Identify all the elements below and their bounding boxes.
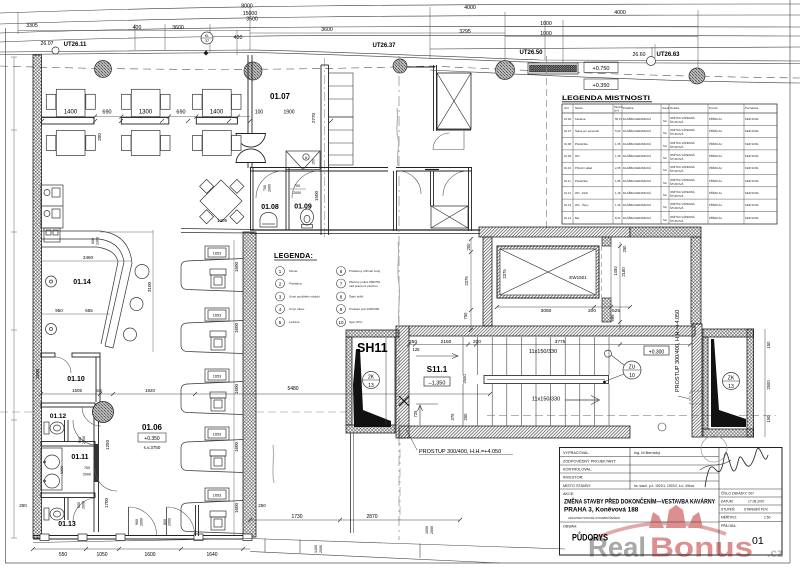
svg-text:DLAŽBA KERAMICKÁ: DLAŽBA KERAMICKÁ bbox=[623, 178, 651, 183]
svg-text:125: 125 bbox=[413, 347, 421, 352]
svg-text:Kavárna: Kavárna bbox=[575, 117, 586, 121]
svg-text:SA: SA bbox=[663, 144, 667, 148]
svg-text:690: 690 bbox=[176, 110, 185, 116]
svg-text:hs. slouč. p.č. 1922/1, 1922/2: hs. slouč. p.č. 1922/1, 1922/2, k.ú. Vít… bbox=[634, 484, 695, 488]
svg-text:1653: 1653 bbox=[213, 375, 221, 379]
svg-text:250: 250 bbox=[622, 245, 627, 253]
svg-text:200: 200 bbox=[97, 133, 102, 141]
svg-text:2150: 2150 bbox=[441, 339, 452, 345]
svg-text:1600: 1600 bbox=[144, 552, 155, 558]
svg-text:375: 375 bbox=[450, 413, 455, 421]
svg-text:55,07: 55,07 bbox=[615, 117, 622, 121]
svg-text:1000: 1000 bbox=[540, 21, 552, 27]
svg-text:1300: 1300 bbox=[60, 466, 64, 474]
svg-text:01.07: 01.07 bbox=[270, 92, 291, 101]
svg-text:01.09: 01.09 bbox=[294, 204, 312, 211]
svg-text:1050: 1050 bbox=[96, 552, 107, 558]
svg-text:26.60: 26.60 bbox=[633, 52, 646, 58]
svg-text:1730: 1730 bbox=[291, 514, 302, 520]
svg-text:2000: 2000 bbox=[82, 501, 86, 509]
svg-text:1,35: 1,35 bbox=[615, 154, 621, 158]
svg-text:3100: 3100 bbox=[147, 281, 152, 292]
svg-text:DLAŽBA KERAMICKÁ: DLAŽBA KERAMICKÁ bbox=[623, 141, 651, 146]
svg-text:EW1501: EW1501 bbox=[569, 275, 587, 280]
svg-text:WC - Ženy: WC - Ženy bbox=[575, 202, 589, 207]
svg-text:01.14: 01.14 bbox=[564, 216, 571, 220]
svg-text:DLAŽBA KERAMICKÁ: DLAŽBA KERAMICKÁ bbox=[623, 128, 651, 133]
svg-text:Bonus: Bonus bbox=[650, 532, 753, 563]
svg-text:01.08: 01.08 bbox=[564, 142, 571, 146]
svg-text:01.11: 01.11 bbox=[71, 454, 88, 461]
svg-text:ZU: ZU bbox=[629, 365, 636, 371]
svg-text:DLAŽBA KERAMICKÁ: DLAŽBA KERAMICKÁ bbox=[623, 153, 651, 158]
svg-text:KL: KL bbox=[205, 34, 209, 38]
svg-text:Prodejní pult 1600/300: Prodejní pult 1600/300 bbox=[349, 307, 380, 311]
svg-text:250: 250 bbox=[463, 413, 468, 421]
svg-text:ZMĚNA STAVBY PŘED DOKONČENÍM—V: ZMĚNA STAVBY PŘED DOKONČENÍM—VESTAVBA KA… bbox=[564, 497, 716, 506]
svg-text:PŘÍMLUH: PŘÍMLUH bbox=[709, 116, 722, 121]
svg-text:Umyt rukou: Umyt rukou bbox=[289, 307, 305, 311]
svg-text:nad pracovní plochou: nad pracovní plochou bbox=[349, 284, 378, 288]
svg-text:800: 800 bbox=[163, 519, 167, 525]
svg-text:KER.SOKL: KER.SOKL bbox=[745, 142, 759, 146]
svg-text:PROSTUP 300/400, H.H.=+4.050: PROSTUP 300/400, H.H.=+4.050 bbox=[419, 449, 501, 455]
svg-text:2000: 2000 bbox=[293, 191, 301, 195]
svg-text:1500: 1500 bbox=[35, 368, 40, 379]
svg-text:PŘÍMLUH: PŘÍMLUH bbox=[709, 202, 722, 207]
svg-text:Lednice: Lednice bbox=[289, 320, 300, 324]
svg-text:150: 150 bbox=[312, 159, 316, 165]
svg-text:100: 100 bbox=[255, 110, 264, 116]
svg-text:700: 700 bbox=[263, 185, 267, 191]
svg-text:250: 250 bbox=[409, 339, 417, 345]
svg-text:2770: 2770 bbox=[311, 112, 316, 123]
svg-text:PŘÍMLUH: PŘÍMLUH bbox=[709, 128, 722, 133]
svg-text:PRAHA 3, Koněvová 188: PRAHA 3, Koněvová 188 bbox=[564, 507, 639, 514]
svg-text:+0.350: +0.350 bbox=[144, 436, 160, 442]
svg-text:1653: 1653 bbox=[213, 433, 221, 437]
svg-text:ŠTUKOVÁ: ŠTUKOVÁ bbox=[670, 193, 684, 198]
svg-text:ŠTUKOVÁ: ŠTUKOVÁ bbox=[670, 144, 684, 149]
svg-text:STUPEŇ:: STUPEŇ: bbox=[721, 508, 735, 512]
svg-text:Omítka: Omítka bbox=[670, 106, 679, 110]
svg-text:01: 01 bbox=[752, 535, 764, 547]
svg-text:Název: Název bbox=[575, 106, 584, 110]
svg-text:2500: 2500 bbox=[766, 380, 771, 390]
svg-text:MĚŘÍTKO:: MĚŘÍTKO: bbox=[721, 515, 737, 520]
svg-text:DLAŽBA KERAMICKÁ: DLAŽBA KERAMICKÁ bbox=[623, 165, 651, 170]
svg-text:01.07: 01.07 bbox=[564, 129, 571, 133]
svg-text:3600: 3600 bbox=[321, 27, 333, 33]
svg-text:2000: 2000 bbox=[268, 184, 272, 192]
svg-text:DLAŽBA KERAMICKÁ: DLAŽBA KERAMICKÁ bbox=[623, 202, 651, 207]
svg-text:725: 725 bbox=[413, 410, 418, 418]
svg-text:1920: 1920 bbox=[145, 388, 156, 393]
svg-text:1300: 1300 bbox=[139, 110, 153, 116]
svg-text:8: 8 bbox=[305, 156, 307, 160]
svg-text:1500: 1500 bbox=[314, 190, 319, 201]
svg-text:[m²]: [m²] bbox=[614, 109, 619, 113]
svg-text:900: 900 bbox=[135, 519, 139, 525]
svg-text:1,86: 1,86 bbox=[615, 179, 621, 183]
svg-text:3600: 3600 bbox=[172, 25, 184, 31]
svg-text:3500: 3500 bbox=[246, 17, 258, 23]
svg-text:1700: 1700 bbox=[104, 497, 109, 508]
svg-text:Předsíňka: Předsíňka bbox=[575, 179, 588, 183]
svg-text:KER.SOKL: KER.SOKL bbox=[745, 166, 759, 170]
svg-text:Předsíňka: Předsíňka bbox=[575, 142, 588, 146]
svg-text:PŘÍMLUH: PŘÍMLUH bbox=[709, 178, 722, 183]
svg-text:1400: 1400 bbox=[314, 545, 318, 553]
svg-text:PŘÍLOHA:: PŘÍLOHA: bbox=[721, 523, 736, 528]
svg-text:AKCE:: AKCE: bbox=[563, 492, 574, 496]
svg-text:1640: 1640 bbox=[206, 552, 217, 558]
svg-text:2000: 2000 bbox=[430, 526, 434, 534]
svg-text:Spor (PC): Spor (PC) bbox=[349, 320, 362, 324]
svg-text:LEGENDA:: LEGENDA: bbox=[274, 251, 313, 260]
svg-text:2000: 2000 bbox=[82, 436, 86, 444]
svg-text:Šatní skříň: Šatní skříň bbox=[349, 294, 364, 299]
svg-text:KER.SOKL: KER.SOKL bbox=[745, 154, 759, 158]
svg-text:Ozn: Ozn bbox=[564, 106, 570, 110]
svg-text:10: 10 bbox=[338, 320, 344, 325]
svg-text:3050: 3050 bbox=[541, 308, 552, 314]
svg-text:695: 695 bbox=[610, 314, 615, 322]
svg-text:SA: SA bbox=[663, 131, 667, 135]
svg-text:ŠTUKOVÁ: ŠTUKOVÁ bbox=[670, 131, 684, 136]
svg-text:ŠTUKOVÁ: ŠTUKOVÁ bbox=[670, 218, 684, 223]
svg-text:1600: 1600 bbox=[234, 441, 239, 452]
svg-text:37: 37 bbox=[205, 39, 209, 43]
svg-text:UT26.50: UT26.50 bbox=[519, 50, 543, 56]
svg-text:1300: 1300 bbox=[96, 237, 100, 245]
svg-text:1653: 1653 bbox=[213, 494, 221, 498]
svg-text:KER.SOKL: KER.SOKL bbox=[745, 117, 759, 121]
svg-text:1000: 1000 bbox=[425, 526, 429, 534]
svg-text:ARCHITEKTONICKÉ STAVEBNÍ ŘEŠEN: ARCHITEKTONICKÉ STAVEBNÍ ŘEŠENÍ bbox=[568, 515, 620, 520]
svg-text:3295: 3295 bbox=[459, 29, 471, 35]
svg-text:2K: 2K bbox=[368, 375, 375, 381]
svg-text:Ing. M.Bernický: Ing. M.Bernický bbox=[634, 451, 660, 455]
svg-text:1,35: 1,35 bbox=[615, 142, 621, 146]
svg-text:2500: 2500 bbox=[462, 374, 467, 384]
svg-text:Šatna pro personál: Šatna pro personál bbox=[575, 128, 599, 133]
svg-text:1000: 1000 bbox=[540, 31, 552, 37]
svg-text:UT26.63: UT26.63 bbox=[656, 52, 680, 58]
svg-text:DLAŽBA KERAMICKÁ: DLAŽBA KERAMICKÁ bbox=[623, 116, 651, 121]
svg-text:1,16: 1,16 bbox=[615, 203, 621, 207]
svg-text:SA: SA bbox=[663, 181, 667, 185]
svg-text:KONTROLOVAL:: KONTROLOVAL: bbox=[563, 468, 592, 472]
svg-text:1653: 1653 bbox=[213, 314, 221, 318]
svg-text:01.13: 01.13 bbox=[564, 203, 571, 207]
svg-text:01.06: 01.06 bbox=[142, 423, 163, 432]
svg-text:.cz: .cz bbox=[767, 546, 783, 560]
svg-text:1600: 1600 bbox=[234, 322, 239, 333]
svg-text:Podlaha: Podlaha bbox=[623, 106, 634, 110]
svg-text:01.08: 01.08 bbox=[261, 204, 279, 211]
svg-text:26.07: 26.07 bbox=[41, 41, 54, 47]
svg-text:SA: SA bbox=[663, 168, 667, 172]
svg-text:–1,350: –1,350 bbox=[429, 381, 446, 387]
svg-text:Prùtokový ohřívač vody: Prùtokový ohřívač vody bbox=[349, 269, 381, 273]
svg-text:+0.300: +0.300 bbox=[649, 350, 665, 356]
svg-text:525: 525 bbox=[612, 308, 620, 314]
svg-text:KER.SOKL: KER.SOKL bbox=[745, 203, 759, 207]
svg-text:UT26.11: UT26.11 bbox=[64, 42, 87, 48]
svg-text:600: 600 bbox=[77, 502, 81, 508]
svg-text:200: 200 bbox=[473, 339, 481, 345]
svg-text:01.13: 01.13 bbox=[58, 521, 76, 528]
svg-text:250: 250 bbox=[258, 503, 266, 508]
svg-text:Klozet: Klozet bbox=[289, 269, 298, 273]
svg-text:5,62: 5,62 bbox=[615, 129, 621, 133]
svg-text:LEGENDA MISTNOSTI: LEGENDA MISTNOSTI bbox=[562, 95, 650, 102]
svg-text:690: 690 bbox=[102, 110, 111, 116]
svg-text:11x150/330: 11x150/330 bbox=[532, 397, 560, 403]
svg-text:ŠTUKOVÁ: ŠTUKOVÁ bbox=[670, 181, 684, 186]
svg-text:Soudr: Soudr bbox=[662, 106, 670, 110]
svg-text:01.06: 01.06 bbox=[564, 117, 571, 121]
svg-text:Pokladna: Pokladna bbox=[289, 282, 302, 286]
svg-text:150: 150 bbox=[766, 341, 771, 349]
svg-text:2375: 2375 bbox=[502, 269, 507, 279]
svg-text:WC - Muži: WC - Muži bbox=[575, 191, 588, 195]
svg-text:1400: 1400 bbox=[64, 110, 78, 116]
svg-text:OBSAH:: OBSAH: bbox=[563, 525, 577, 529]
svg-text:INVESTOR:: INVESTOR: bbox=[563, 476, 583, 480]
svg-text:01.10: 01.10 bbox=[67, 376, 85, 383]
svg-text:655: 655 bbox=[85, 308, 93, 313]
svg-text:01.12: 01.12 bbox=[50, 413, 67, 420]
svg-text:WC: WC bbox=[575, 154, 580, 158]
svg-text:11x150/330: 11x150/330 bbox=[529, 349, 557, 355]
svg-text:2000: 2000 bbox=[140, 518, 144, 526]
svg-text:SA: SA bbox=[663, 156, 667, 160]
svg-text:ŠTUKOVÁ: ŠTUKOVÁ bbox=[670, 168, 684, 173]
svg-text:700: 700 bbox=[294, 184, 300, 188]
svg-text:1900: 1900 bbox=[283, 110, 294, 116]
svg-text:Umyt použitého nádobí: Umyt použitého nádobí bbox=[289, 295, 320, 299]
svg-text:1250: 1250 bbox=[105, 439, 110, 450]
svg-text:5480: 5480 bbox=[287, 386, 298, 392]
svg-text:SA: SA bbox=[663, 205, 667, 209]
svg-text:01.09: 01.09 bbox=[564, 154, 571, 158]
svg-text:SA: SA bbox=[663, 119, 667, 123]
svg-text:+0.750: +0.750 bbox=[593, 66, 610, 72]
svg-text:DLAŽBA KERAMICKÁ: DLAŽBA KERAMICKÁ bbox=[623, 215, 651, 220]
svg-text:1653: 1653 bbox=[213, 252, 221, 256]
svg-text:1505: 1505 bbox=[72, 388, 83, 393]
svg-text:4000: 4000 bbox=[464, 5, 476, 11]
svg-text:150: 150 bbox=[766, 415, 771, 423]
svg-text:2000: 2000 bbox=[319, 545, 323, 553]
svg-text:Poznámka: Poznámka bbox=[745, 106, 759, 110]
svg-text:SA: SA bbox=[663, 218, 667, 222]
svg-text:UT26.37: UT26.37 bbox=[372, 43, 396, 49]
svg-text:STAVEBNÍ POV.: STAVEBNÍ POV. bbox=[744, 508, 768, 512]
svg-text:DLAŽBA KERAMICKÁ: DLAŽBA KERAMICKÁ bbox=[623, 190, 651, 195]
svg-text:3775: 3775 bbox=[555, 339, 566, 345]
svg-text:10: 10 bbox=[629, 373, 635, 379]
svg-text:1,16: 1,16 bbox=[615, 191, 621, 195]
svg-text:400: 400 bbox=[133, 25, 142, 31]
svg-text:2,25: 2,25 bbox=[615, 166, 621, 170]
svg-text:2870: 2870 bbox=[366, 514, 377, 520]
svg-text:550: 550 bbox=[59, 552, 68, 558]
svg-text:DATUM:: DATUM: bbox=[721, 500, 733, 504]
svg-text:SA: SA bbox=[663, 193, 667, 197]
svg-text:700: 700 bbox=[84, 466, 90, 470]
svg-text:ZK: ZK bbox=[728, 376, 735, 382]
svg-text:s.v.3750: s.v.3750 bbox=[144, 445, 161, 450]
svg-text:PŮDORYS: PŮDORYS bbox=[572, 532, 608, 543]
svg-text:KER.SOKL: KER.SOKL bbox=[745, 216, 759, 220]
svg-text:PŘÍMLUH: PŘÍMLUH bbox=[709, 215, 722, 220]
svg-text:4000: 4000 bbox=[614, 10, 626, 16]
svg-text:1600: 1600 bbox=[234, 502, 239, 513]
svg-text:PŘÍMLUH: PŘÍMLUH bbox=[709, 141, 722, 146]
svg-text:1600: 1600 bbox=[234, 383, 239, 394]
svg-text:ZODPOVĚDNÝ PROJEKTANT:: ZODPOVĚDNÝ PROJEKTANT: bbox=[563, 458, 616, 463]
svg-text:750: 750 bbox=[463, 312, 468, 320]
svg-text:01.10: 01.10 bbox=[564, 166, 571, 170]
svg-text:01.11: 01.11 bbox=[564, 179, 571, 183]
svg-text:S11.1: S11.1 bbox=[427, 365, 448, 374]
svg-text:3305: 3305 bbox=[26, 23, 38, 29]
svg-text:01.12: 01.12 bbox=[564, 191, 571, 195]
svg-text:250: 250 bbox=[19, 503, 27, 508]
svg-text:ŠTUKOVÁ: ŠTUKOVÁ bbox=[670, 119, 684, 124]
svg-text:13: 13 bbox=[728, 384, 734, 390]
svg-text:1400: 1400 bbox=[210, 110, 224, 116]
svg-text:13: 13 bbox=[368, 383, 374, 389]
svg-text:PROSTUP 300/400, H.H.=+4.050: PROSTUP 300/400, H.H.=+4.050 bbox=[675, 310, 681, 392]
svg-text:8000: 8000 bbox=[241, 4, 253, 10]
svg-text:PŘÍMLUH: PŘÍMLUH bbox=[709, 153, 722, 158]
svg-text:1450: 1450 bbox=[613, 266, 618, 276]
svg-text:KER.SOKL: KER.SOKL bbox=[745, 129, 759, 133]
svg-text:PŘÍMLUH: PŘÍMLUH bbox=[709, 190, 722, 195]
svg-text:2000: 2000 bbox=[168, 518, 172, 526]
svg-text:17.08.2007: 17.08.2007 bbox=[748, 500, 765, 504]
svg-text:8,41: 8,41 bbox=[615, 216, 621, 220]
svg-text:2000: 2000 bbox=[83, 473, 91, 477]
svg-text:ŠTUKOVÁ: ŠTUKOVÁ bbox=[670, 156, 684, 161]
svg-text:950: 950 bbox=[55, 308, 63, 313]
svg-text:2180: 2180 bbox=[621, 267, 626, 277]
svg-text:200: 200 bbox=[466, 243, 471, 251]
svg-text:01.14: 01.14 bbox=[73, 279, 91, 286]
svg-text:600: 600 bbox=[91, 238, 95, 244]
svg-text:2460: 2460 bbox=[83, 255, 94, 260]
svg-text:ŠTUKOVÁ: ŠTUKOVÁ bbox=[670, 205, 684, 210]
svg-text:VYPRACOVAL:: VYPRACOVAL: bbox=[563, 451, 590, 455]
svg-text:MÍSTO STAVBY:: MÍSTO STAVBY: bbox=[563, 484, 591, 488]
svg-text:SH11: SH11 bbox=[357, 341, 388, 355]
svg-text:KER.SOKL: KER.SOKL bbox=[745, 179, 759, 183]
svg-text:Bar: Bar bbox=[575, 216, 579, 220]
svg-text:KER.SOKL: KER.SOKL bbox=[745, 191, 759, 195]
svg-text:1600: 1600 bbox=[234, 261, 239, 272]
svg-text:1:50: 1:50 bbox=[764, 516, 771, 520]
svg-text:+0.350: +0.350 bbox=[593, 83, 610, 89]
svg-text:1405: 1405 bbox=[217, 218, 228, 223]
svg-text:400: 400 bbox=[234, 35, 243, 41]
svg-text:PŘÍMLUH: PŘÍMLUH bbox=[709, 165, 722, 170]
svg-text:ČÍSLO ZAKÁZKY: 007: ČÍSLO ZAKÁZKY: 007 bbox=[721, 491, 754, 496]
svg-text:Příruční sklad: Příruční sklad bbox=[575, 166, 593, 170]
svg-text:2375: 2375 bbox=[464, 276, 469, 286]
svg-text:Povrch: Povrch bbox=[709, 106, 718, 110]
